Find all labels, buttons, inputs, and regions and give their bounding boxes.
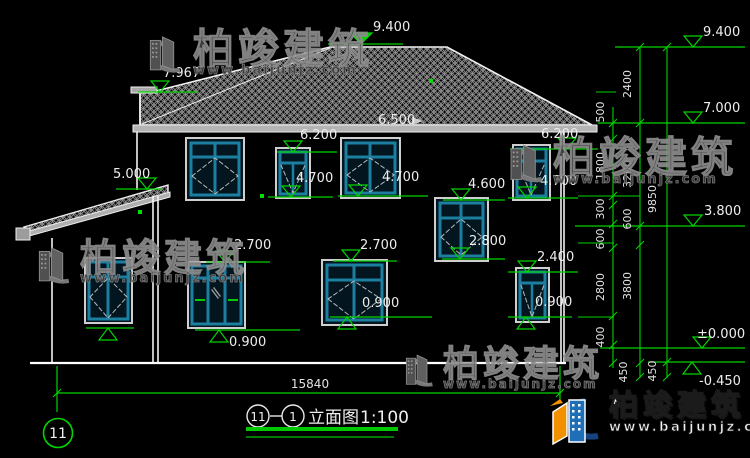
level-label: 2.400	[537, 250, 574, 265]
dim-value: 300	[594, 199, 607, 220]
brand-logo: 柏竣建筑 www.baijunjz.com	[540, 390, 750, 456]
title-scale: 1:100	[360, 408, 409, 428]
grid-bubble-label: 11	[49, 426, 67, 442]
dim-value: 600	[594, 229, 607, 250]
title-bubble-left-label: 11	[250, 410, 265, 424]
level-label: 2.700	[360, 238, 397, 253]
level-label: 6.500	[378, 113, 415, 128]
level-label: 4.700	[382, 170, 419, 185]
dim-value: 2400	[621, 70, 634, 98]
level-label: 5.000	[113, 167, 150, 182]
main-roof	[131, 47, 597, 132]
main-eave-fascia	[133, 125, 597, 132]
brand-logo-site: www.baijunjz.com	[609, 420, 750, 435]
level-label: 4.600	[468, 177, 505, 192]
drawing-title: 11 1 立面图 1:100	[246, 405, 409, 437]
level-label: 6.200	[541, 127, 578, 142]
dim-value: 600	[621, 209, 634, 230]
brand-logo-icon	[540, 390, 604, 456]
level-label: 2.700	[234, 238, 271, 253]
window-w1	[186, 138, 244, 200]
title-bubble-right-label: 1	[289, 410, 297, 424]
dim-value: 1800	[594, 152, 607, 180]
cad-canvas: 7.967 9.400 6.500 6.200 5.000 4.700 4.70…	[0, 0, 750, 458]
dim-value: 2800	[594, 273, 607, 301]
level-label: -0.450	[699, 374, 741, 389]
window-w6	[85, 258, 132, 323]
dim-value: 500	[594, 102, 607, 123]
brand-logo-name: 柏竣建筑	[609, 390, 750, 420]
bottom-dimension: 15840 11	[44, 366, 565, 448]
title-underline-thick	[246, 427, 398, 431]
window-w8	[322, 260, 387, 325]
level-label: 3.800	[704, 204, 741, 219]
level-label: 7.000	[703, 101, 740, 116]
overall-width-dim: 15840	[291, 377, 329, 391]
window-w3	[341, 138, 400, 198]
porch-roof	[16, 185, 170, 240]
level-label: ±0.000	[697, 327, 745, 342]
level-label: 7.967	[163, 66, 200, 81]
porch-eave-fascia	[22, 192, 170, 238]
level-label: 0.900	[362, 296, 399, 311]
level-label: 6.200	[300, 128, 337, 143]
dim-value: 9850	[646, 185, 659, 213]
window-group	[85, 138, 550, 328]
level-label: 9.400	[703, 25, 740, 40]
level-label: 0.900	[535, 295, 572, 310]
level-label: 2.800	[469, 234, 506, 249]
dim-value: 400	[594, 327, 607, 348]
dim-value: 450	[617, 362, 630, 383]
dim-value: 450	[646, 361, 659, 382]
level-label: 4.700	[296, 171, 333, 186]
dim-value: 3800	[621, 272, 634, 300]
dimension-chains: 500 1800 300 600 2800 400 2400 3200 600 …	[578, 43, 671, 383]
level-label: 9.400	[373, 20, 410, 35]
window-w7	[188, 262, 245, 328]
title-name: 立面图	[308, 408, 359, 428]
dim-value: 3200	[621, 160, 634, 188]
window-w4	[435, 198, 488, 261]
porch-gutter-end	[16, 228, 30, 240]
level-label: 4.700	[540, 174, 577, 189]
level-label: 0.900	[229, 335, 266, 350]
